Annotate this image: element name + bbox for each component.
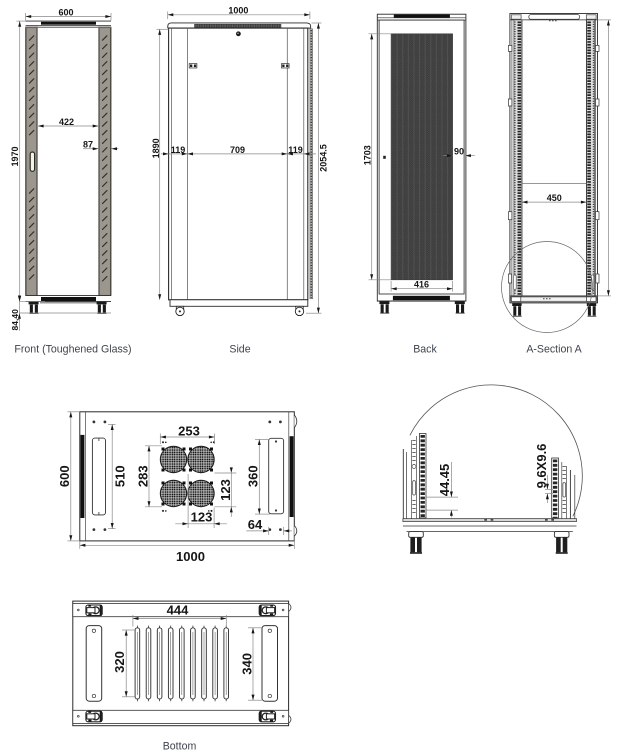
- svg-text:1703: 1703: [363, 145, 373, 165]
- svg-text:9.6X9.6: 9.6X9.6: [534, 444, 549, 489]
- svg-text:64: 64: [248, 517, 263, 532]
- svg-text:119: 119: [288, 145, 303, 155]
- svg-text:1890: 1890: [151, 138, 161, 158]
- svg-text:A-Section A: A-Section A: [526, 343, 582, 355]
- svg-text:123: 123: [191, 509, 213, 524]
- svg-text:44.45: 44.45: [437, 464, 452, 497]
- svg-text:600: 600: [58, 7, 73, 17]
- svg-text:1000: 1000: [176, 549, 205, 564]
- svg-text:709: 709: [230, 145, 245, 155]
- svg-text:123: 123: [218, 479, 233, 501]
- svg-text:510: 510: [112, 465, 127, 487]
- svg-text:340: 340: [239, 653, 254, 675]
- svg-text:320: 320: [112, 651, 127, 673]
- svg-text:Back: Back: [413, 343, 437, 355]
- svg-text:600: 600: [57, 465, 72, 487]
- svg-text:360: 360: [245, 465, 260, 487]
- svg-text:Front (Toughened Glass): Front (Toughened Glass): [14, 343, 131, 355]
- svg-text:416: 416: [414, 280, 429, 290]
- svg-text:422: 422: [59, 117, 74, 127]
- svg-text:1000: 1000: [228, 6, 248, 16]
- svg-text:Side: Side: [229, 344, 250, 356]
- svg-text:119: 119: [171, 145, 186, 155]
- svg-text:84,40: 84,40: [10, 309, 20, 331]
- svg-text:Bottom: Bottom: [163, 741, 197, 752]
- svg-text:283: 283: [136, 465, 151, 487]
- svg-text:87: 87: [83, 140, 93, 150]
- svg-text:450: 450: [547, 193, 562, 203]
- svg-text:90: 90: [454, 147, 464, 157]
- svg-text:444: 444: [167, 603, 189, 618]
- svg-text:253: 253: [178, 424, 200, 439]
- svg-text:2054.5: 2054.5: [318, 144, 328, 172]
- svg-text:1970: 1970: [10, 146, 20, 166]
